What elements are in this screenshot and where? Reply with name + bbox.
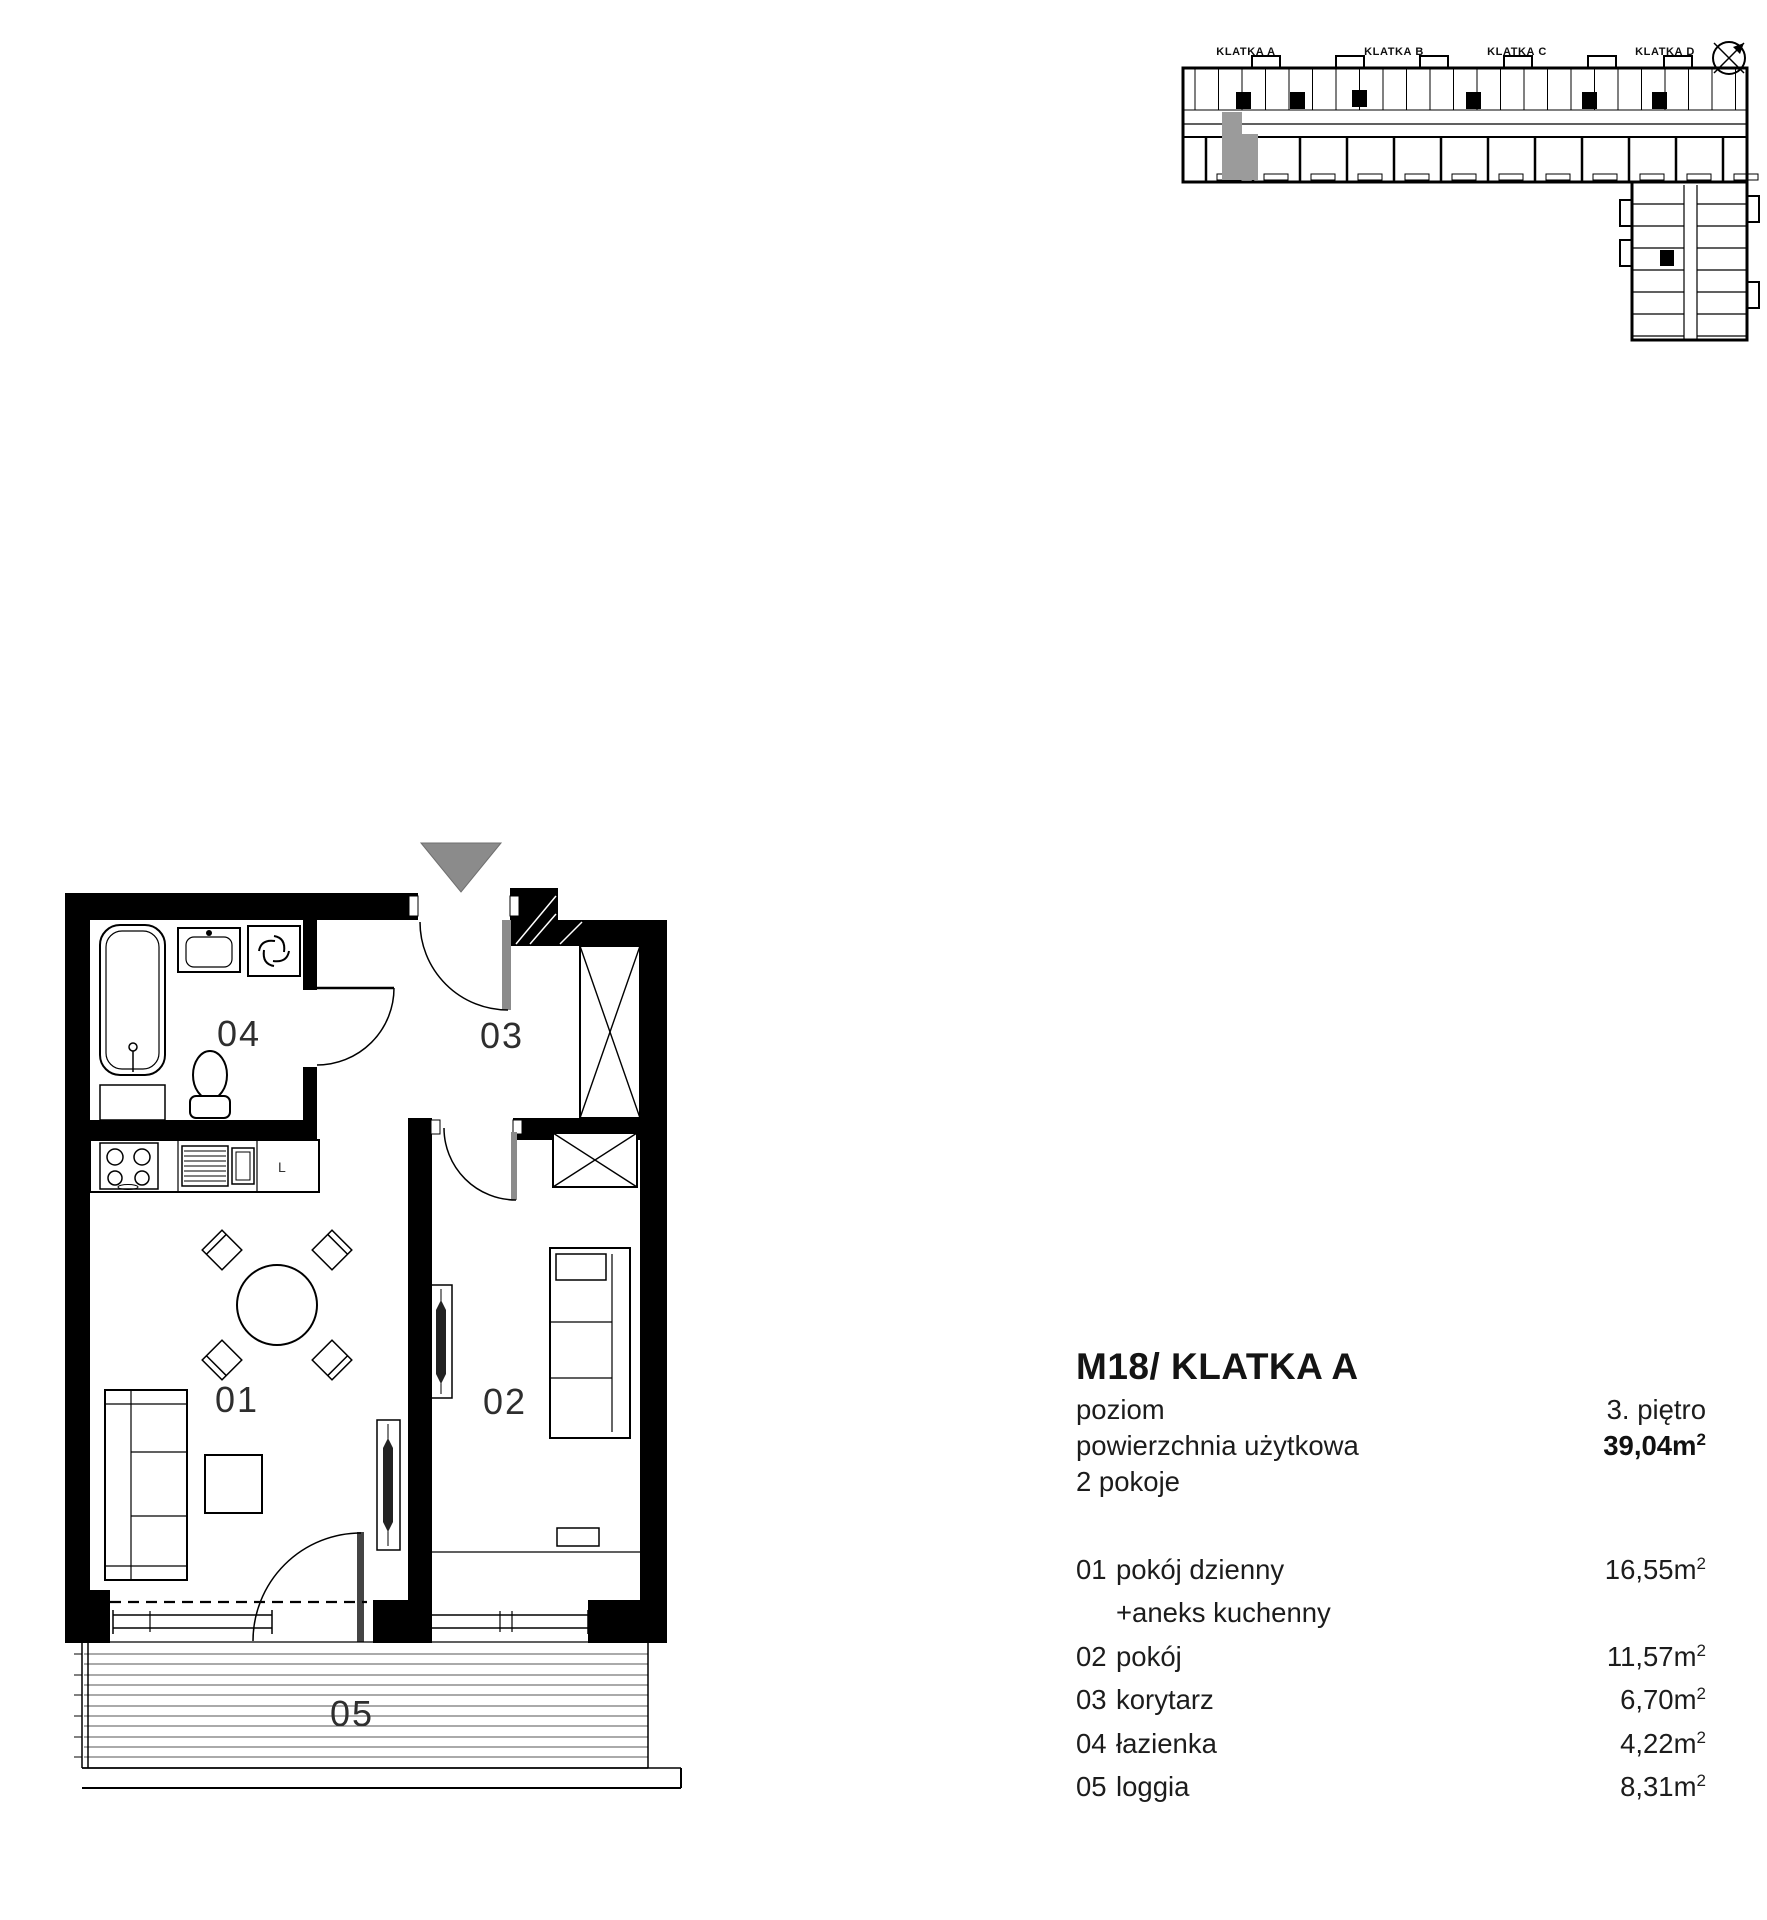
room-row-01b: +aneks kuchenny: [1076, 1596, 1706, 1630]
window-living: [110, 1610, 373, 1642]
entrance-marker-icon: [421, 843, 501, 892]
bed-icon: [550, 1248, 630, 1438]
floorplan-page: { "colors": { "line": "#000000", "text":…: [0, 0, 1767, 1920]
chairs: [202, 1230, 352, 1380]
unit-title: M18/ KLATKA A: [1076, 1346, 1359, 1388]
dining-table-icon: [237, 1265, 317, 1345]
klatka-a-label: KLATKA A: [1216, 46, 1275, 58]
shaft-box: [580, 946, 640, 1118]
washbasin-icon: [178, 928, 240, 972]
entrance-door: [420, 920, 511, 1010]
loggia: [74, 1643, 681, 1788]
wardrobe-box: [553, 1133, 637, 1187]
room-label-05: 05: [330, 1693, 374, 1734]
klatka-b-label: KLATKA B: [1364, 46, 1424, 58]
radiator-room2: [430, 1285, 452, 1398]
usable-area-value: 39,04m2: [1603, 1429, 1706, 1463]
level-value: 3. piętro: [1607, 1393, 1706, 1427]
usable-area-label: powierzchnia użytkowa: [1076, 1429, 1359, 1463]
room-area-05: 8,31m2: [1620, 1770, 1706, 1804]
room-area-03: 6,70m2: [1620, 1683, 1706, 1717]
room-row-05: 05loggia 8,31m2: [1076, 1770, 1706, 1804]
floor-plan-canvas: L: [0, 0, 1767, 1920]
level-label: poziom: [1076, 1393, 1165, 1427]
washing-machine-icon: [248, 926, 300, 976]
kitchen-sink-icon: [182, 1146, 254, 1186]
highlighted-unit: [1222, 134, 1258, 180]
bathtub-icon: [100, 925, 165, 1075]
room-area-01: 16,55m2: [1605, 1553, 1706, 1587]
bathroom-door: [317, 988, 394, 1065]
room-row-02: 02pokój 11,57m2: [1076, 1640, 1706, 1674]
radiator-living: [377, 1420, 400, 1550]
building-overview-plan: [1183, 42, 1759, 340]
stove-icon: [100, 1143, 158, 1190]
sofa-icon: [105, 1390, 187, 1580]
room2-door: [444, 1128, 517, 1200]
klatka-d-label: KLATKA D: [1635, 46, 1695, 58]
bath-cabinet: [100, 1085, 165, 1120]
toilet-icon: [190, 1051, 230, 1118]
room-row-01: 01pokój dzienny 16,55m2: [1076, 1553, 1706, 1587]
apartment-plan: L: [65, 843, 681, 1788]
room-row-03: 03korytarz 6,70m2: [1076, 1683, 1706, 1717]
nightstand-icon: [557, 1528, 599, 1546]
walls: [65, 888, 667, 1643]
room-area-04: 4,22m2: [1620, 1727, 1706, 1761]
room-area-02: 11,57m2: [1607, 1640, 1706, 1674]
usable-area-row: powierzchnia użytkowa 39,04m2: [1076, 1429, 1706, 1463]
room-row-04: 04łazienka 4,22m2: [1076, 1727, 1706, 1761]
coffee-table-icon: [205, 1455, 262, 1513]
level-row: poziom 3. piętro: [1076, 1393, 1706, 1427]
balcony-door: [253, 1532, 364, 1642]
room-label-04: 04: [217, 1013, 261, 1054]
rooms-count-row: 2 pokoje: [1076, 1465, 1706, 1499]
rooms-count-label: 2 pokoje: [1076, 1465, 1180, 1499]
window-room2: [427, 1610, 588, 1642]
klatka-c-label: KLATKA C: [1487, 46, 1547, 58]
room-label-03: 03: [480, 1015, 524, 1056]
room-label-02: 02: [483, 1381, 527, 1422]
room-label-01: 01: [215, 1379, 259, 1420]
kitchen-letter: L: [278, 1159, 286, 1175]
